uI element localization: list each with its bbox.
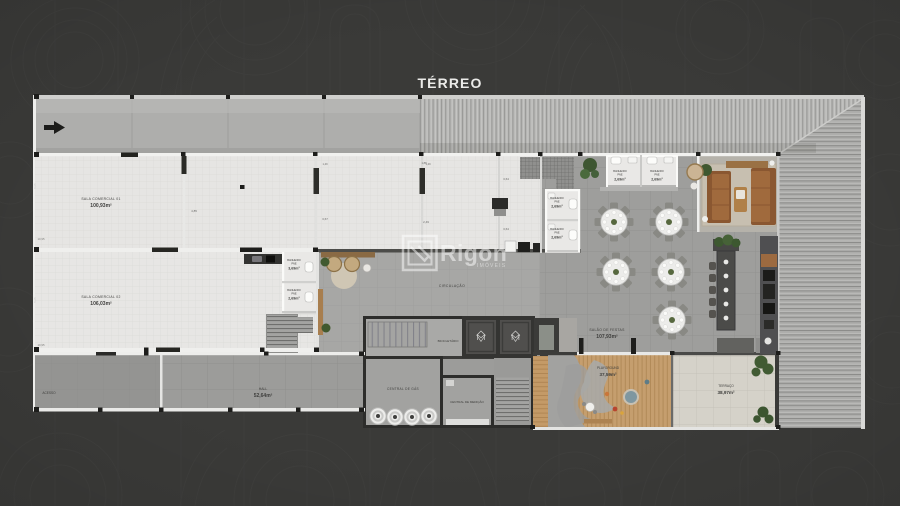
svg-text:SALA COMERCIAL 01: SALA COMERCIAL 01: [81, 197, 120, 201]
svg-text:1,88: 1,88: [421, 161, 427, 165]
svg-text:4,85: 4,85: [191, 209, 197, 213]
svg-text:BANHEIRO: BANHEIRO: [287, 288, 301, 292]
svg-text:BANHEIRO: BANHEIRO: [550, 227, 564, 231]
svg-text:10,95: 10,95: [38, 343, 45, 347]
svg-text:10,95: 10,95: [38, 237, 45, 241]
svg-text:107,93m²: 107,93m²: [596, 334, 618, 340]
svg-text:BANHEIRO: BANHEIRO: [550, 196, 564, 200]
svg-text:CENTRAL DE MEDIÇÃO: CENTRAL DE MEDIÇÃO: [450, 399, 484, 404]
svg-text:HALL: HALL: [259, 387, 268, 391]
svg-text:PNE: PNE: [554, 231, 560, 235]
svg-text:PNE: PNE: [291, 292, 297, 296]
svg-text:2,69m²: 2,69m²: [651, 178, 663, 182]
svg-text:PNE: PNE: [654, 173, 660, 177]
svg-text:106,03m²: 106,03m²: [90, 301, 112, 307]
svg-text:BANHEIRO: BANHEIRO: [650, 169, 664, 173]
svg-text:2,69m²: 2,69m²: [288, 297, 300, 301]
svg-text:IMÓVEIS: IMÓVEIS: [477, 262, 506, 269]
svg-text:SALÃO DE FESTAS: SALÃO DE FESTAS: [589, 327, 625, 332]
svg-text:3,69m²: 3,69m²: [288, 267, 300, 271]
svg-text:38,97m²: 38,97m²: [717, 390, 735, 395]
svg-text:3,64: 3,64: [503, 177, 509, 181]
svg-text:PNE: PNE: [291, 262, 297, 266]
svg-text:2,69m²: 2,69m²: [614, 178, 626, 182]
svg-text:SALA COMERCIAL 02: SALA COMERCIAL 02: [81, 295, 120, 299]
svg-text:3,64: 3,64: [503, 227, 509, 231]
svg-text:52,64m²: 52,64m²: [254, 393, 273, 399]
svg-text:CIRCULAÇÃO: CIRCULAÇÃO: [439, 283, 465, 288]
svg-text:BANHEIRO: BANHEIRO: [287, 258, 301, 262]
svg-text:PLAYGROUND: PLAYGROUND: [597, 366, 620, 370]
svg-text:3,67: 3,67: [322, 217, 328, 221]
svg-text:5,05: 5,05: [33, 297, 37, 303]
svg-text:37,59m²: 37,59m²: [599, 372, 617, 377]
svg-text:2,69m²: 2,69m²: [551, 205, 563, 209]
svg-text:PNE: PNE: [554, 200, 560, 204]
svg-text:1,49: 1,49: [322, 162, 328, 166]
svg-text:ACESSO: ACESSO: [42, 391, 56, 395]
svg-text:CENTRAL DE GÁS: CENTRAL DE GÁS: [387, 387, 419, 391]
svg-text:100,93m²: 100,93m²: [90, 203, 112, 209]
svg-text:BANHEIRO: BANHEIRO: [613, 169, 627, 173]
svg-text:2,69m²: 2,69m²: [551, 236, 563, 240]
svg-text:TERRAÇO: TERRAÇO: [718, 384, 734, 388]
svg-text:5,05: 5,05: [33, 183, 37, 189]
svg-text:PNE: PNE: [617, 173, 623, 177]
svg-text:BICICLETÁRIO: BICICLETÁRIO: [438, 339, 460, 343]
svg-text:2,49: 2,49: [423, 220, 429, 224]
